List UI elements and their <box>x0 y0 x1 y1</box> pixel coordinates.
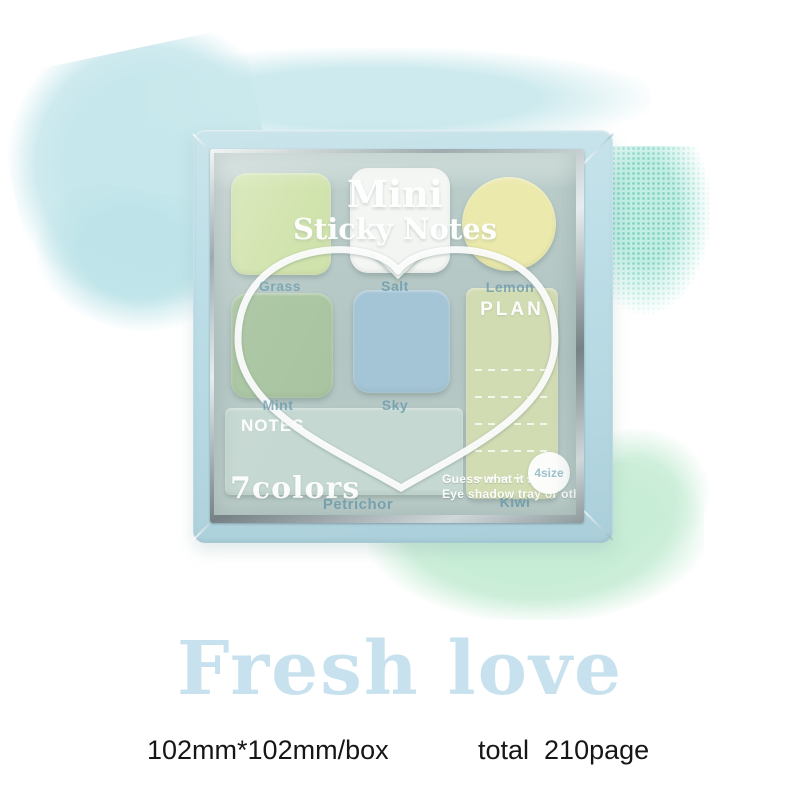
silver-window-frame: Grass Salt Lemon Mint Sky Petrichor Kiwi… <box>210 149 584 523</box>
lid-corner-seam <box>583 133 614 164</box>
product-title-line2: Sticky Notes <box>214 213 576 245</box>
sticky-notes-box: Grass Salt Lemon Mint Sky Petrichor Kiwi… <box>193 130 613 543</box>
clear-window-tray: Grass Salt Lemon Mint Sky Petrichor Kiwi… <box>214 153 576 515</box>
teal-speckle-dots-right <box>596 146 712 316</box>
pad-label-mint: Mint <box>263 397 294 413</box>
product-title-line1: Mini <box>214 175 576 213</box>
product-photo: Grass Salt Lemon Mint Sky Petrichor Kiwi… <box>0 0 800 800</box>
seven-colors-text: 7colors <box>230 471 360 506</box>
spec-box-size: 102mm*102mm/box <box>147 735 389 766</box>
lid-corner-seam <box>583 509 614 540</box>
sticky-pad-mint <box>231 293 333 398</box>
pad-label-sky: Sky <box>382 397 408 413</box>
pad-label-salt: Salt <box>381 278 409 294</box>
notes-notepad-title: NOTES <box>241 416 305 436</box>
teal-powder-patch-right <box>596 146 712 316</box>
product-name-title: Fresh love <box>0 626 800 712</box>
sticky-pad-sky <box>353 290 450 393</box>
plan-notepad-title: PLAN <box>466 299 558 321</box>
pad-label-grass: Grass <box>259 278 301 294</box>
four-size-badge: 4size <box>528 452 570 494</box>
spec-page-count: total 210page <box>478 735 649 766</box>
pad-label-lemon: Lemon <box>486 279 534 295</box>
